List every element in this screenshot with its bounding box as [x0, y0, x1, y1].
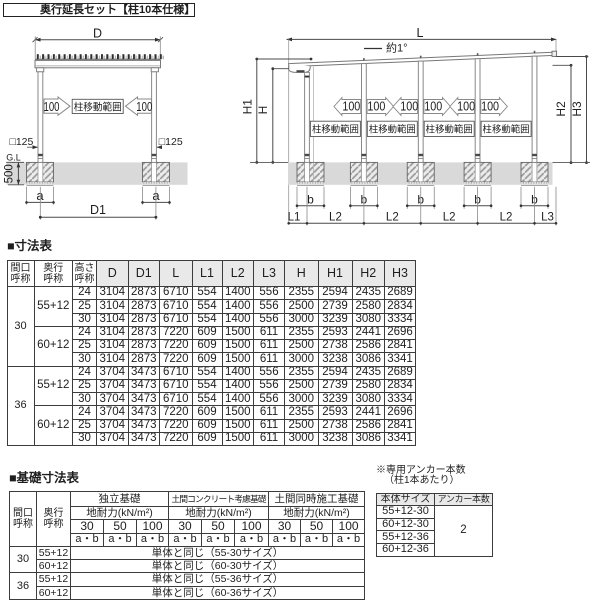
svg-text:L2: L2 [500, 211, 513, 223]
svg-text:□125: □125 [10, 136, 34, 148]
svg-text:G.L: G.L [6, 153, 21, 163]
svg-text:D1: D1 [90, 203, 106, 217]
svg-text:100: 100 [424, 100, 442, 114]
svg-text:柱移動範囲: 柱移動範囲 [74, 100, 122, 113]
svg-text:100: 100 [136, 99, 152, 114]
svg-text:100: 100 [481, 100, 499, 114]
svg-text:H: H [256, 106, 270, 115]
svg-text:a: a [152, 188, 160, 203]
svg-text:100: 100 [367, 100, 385, 114]
svg-text:柱移動範囲: 柱移動範囲 [426, 123, 473, 135]
svg-text:H3: H3 [570, 101, 584, 117]
svg-text:100: 100 [44, 99, 60, 114]
svg-text:約1°: 約1° [386, 41, 408, 55]
svg-text:L3: L3 [541, 211, 554, 223]
svg-text:L1: L1 [288, 211, 301, 223]
svg-text:□125: □125 [159, 136, 183, 148]
svg-text:D: D [93, 27, 102, 41]
svg-text:100: 100 [342, 100, 360, 114]
svg-text:L: L [417, 26, 424, 40]
svg-text:L2: L2 [443, 211, 456, 223]
svg-text:100: 100 [400, 100, 418, 114]
svg-text:柱移動範囲: 柱移動範囲 [483, 123, 530, 135]
svg-text:500: 500 [3, 164, 15, 183]
svg-text:柱移動範囲: 柱移動範囲 [312, 123, 359, 135]
svg-text:柱移動範囲: 柱移動範囲 [369, 123, 416, 135]
svg-text:H2: H2 [554, 101, 568, 117]
svg-text:L2: L2 [329, 211, 342, 223]
svg-text:b: b [307, 192, 314, 206]
svg-text:100: 100 [457, 100, 475, 114]
svg-text:L2: L2 [386, 211, 399, 223]
svg-text:H1: H1 [241, 99, 255, 115]
